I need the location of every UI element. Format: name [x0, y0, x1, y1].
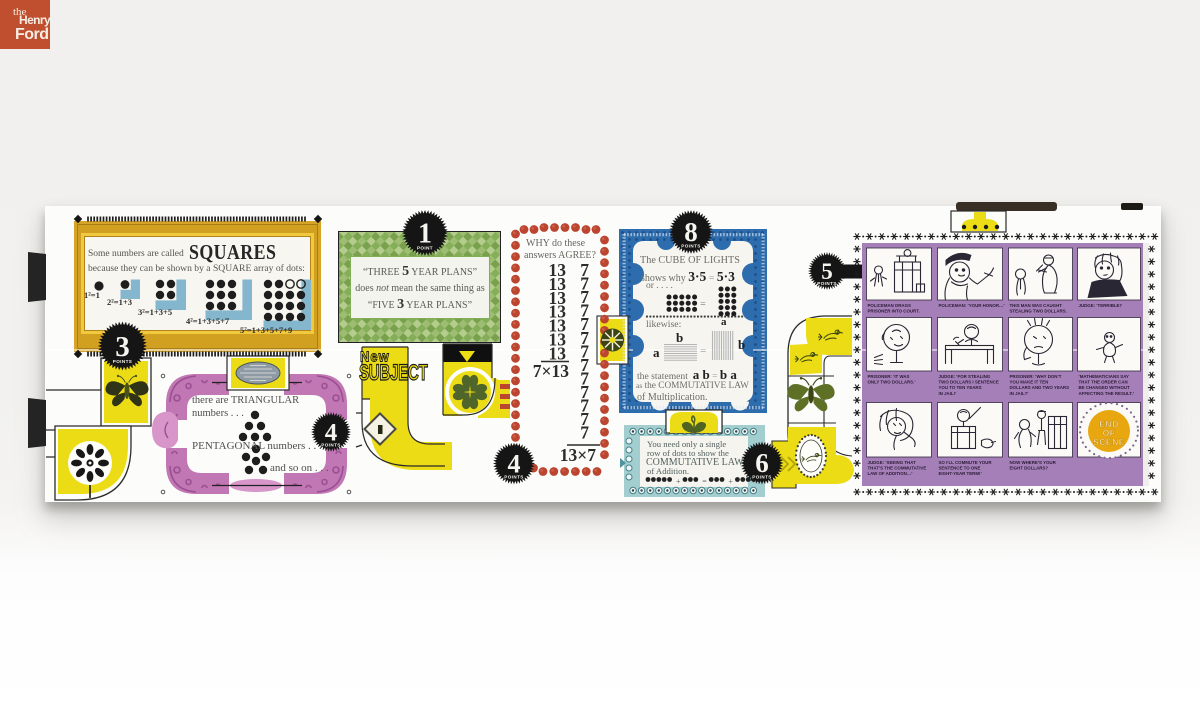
svg-text:JUDGE: ‘FOR STEALING: JUDGE: ‘FOR STEALING	[939, 374, 991, 379]
svg-text:4²=1+3+5+7: 4²=1+3+5+7	[186, 316, 230, 326]
svg-text:YOU MAKE IT TEN: YOU MAKE IT TEN	[1010, 380, 1049, 385]
svg-text:2²=1+3: 2²=1+3	[107, 297, 132, 307]
svg-text:+: +	[676, 477, 681, 486]
svg-text:LAW OF ADDITION…’: LAW OF ADDITION…’	[868, 471, 913, 476]
svg-text:SCENE: SCENE	[1093, 437, 1125, 447]
svg-text:THAT’S THE COMMUTATIVE: THAT’S THE COMMUTATIVE	[868, 466, 927, 471]
svg-text:EIGHT DOLLARS?: EIGHT DOLLARS?	[1010, 466, 1049, 471]
svg-text:‘MATHEMATICIANS SAY: ‘MATHEMATICIANS SAY	[1079, 374, 1129, 379]
svg-text:=: =	[702, 477, 707, 486]
svg-text:PRISONER: ‘WHY DON’T: PRISONER: ‘WHY DON’T	[1010, 374, 1062, 379]
svg-text:DOLLARS AND TWO YEARS: DOLLARS AND TWO YEARS	[1010, 385, 1070, 390]
svg-text:IN JAIL?’: IN JAIL?’	[1010, 391, 1029, 396]
svg-text:BE CHANGED WITHOUT: BE CHANGED WITHOUT	[1079, 385, 1131, 390]
svg-text:SENTENCE TO ONE: SENTENCE TO ONE	[939, 466, 981, 471]
svg-text:YOU TO TEN YEARS: YOU TO TEN YEARS	[939, 385, 982, 390]
svg-text:POINTS: POINTS	[113, 359, 133, 364]
svg-text:ONLY TWO DOLLARS.’: ONLY TWO DOLLARS.’	[868, 380, 916, 385]
svg-text:1²=1: 1²=1	[84, 290, 100, 300]
svg-text:SO I’LL COMMUTE YOUR: SO I’LL COMMUTE YOUR	[939, 460, 993, 465]
svg-text:POLICEMAN: ‘YOUR HONOR…’: POLICEMAN: ‘YOUR HONOR…’	[939, 303, 1005, 308]
svg-text:IN JAIL!’: IN JAIL!’	[939, 391, 957, 396]
svg-text:POLICEMAN DRAGS: POLICEMAN DRAGS	[868, 303, 911, 308]
svg-text:EIGHT-YEAR TERM!’: EIGHT-YEAR TERM!’	[939, 471, 982, 476]
svg-text:PRISONER: ‘IT WAS: PRISONER: ‘IT WAS	[868, 374, 910, 379]
svg-text:5²=1+3+5+7+9: 5²=1+3+5+7+9	[240, 325, 292, 335]
svg-text:3²=1+3+5: 3²=1+3+5	[138, 307, 172, 317]
svg-text:NOW WHERE’S YOUR: NOW WHERE’S YOUR	[1010, 460, 1057, 465]
svg-text:7: 7	[580, 423, 589, 443]
svg-text:JUDGE: ‘TERRIBLE!’: JUDGE: ‘TERRIBLE!’	[1079, 303, 1123, 308]
svg-text:JUDGE: ‘SEEING THAT: JUDGE: ‘SEEING THAT	[868, 460, 917, 465]
svg-text:=: =	[700, 299, 706, 310]
svg-text:THIS MAN WAS CAUGHT: THIS MAN WAS CAUGHT	[1010, 303, 1063, 308]
svg-text:PRISONER INTO COURT.: PRISONER INTO COURT.	[868, 309, 920, 314]
svg-text:7×13: 7×13	[533, 361, 569, 381]
svg-text:+: +	[728, 477, 733, 486]
svg-text:POINTS: POINTS	[504, 475, 524, 480]
svg-text:3: 3	[115, 331, 130, 363]
svg-text:13×7: 13×7	[560, 445, 596, 465]
svg-text:TWO DOLLARS I SENTENCE: TWO DOLLARS I SENTENCE	[939, 380, 999, 385]
svg-text:POINTS: POINTS	[752, 474, 772, 479]
svg-text:POINT: POINT	[417, 245, 433, 250]
svg-text:AFFECTING THE RESULT.’: AFFECTING THE RESULT.’	[1079, 391, 1135, 396]
svg-text:POINTS: POINTS	[681, 244, 701, 249]
svg-text:STEALING TWO DOLLARS.: STEALING TWO DOLLARS.	[1010, 309, 1067, 314]
svg-text:POINTS: POINTS	[321, 442, 341, 447]
svg-text:POINTS: POINTS	[817, 281, 837, 286]
svg-text:THAT THE ORDER CAN: THAT THE ORDER CAN	[1079, 380, 1128, 385]
